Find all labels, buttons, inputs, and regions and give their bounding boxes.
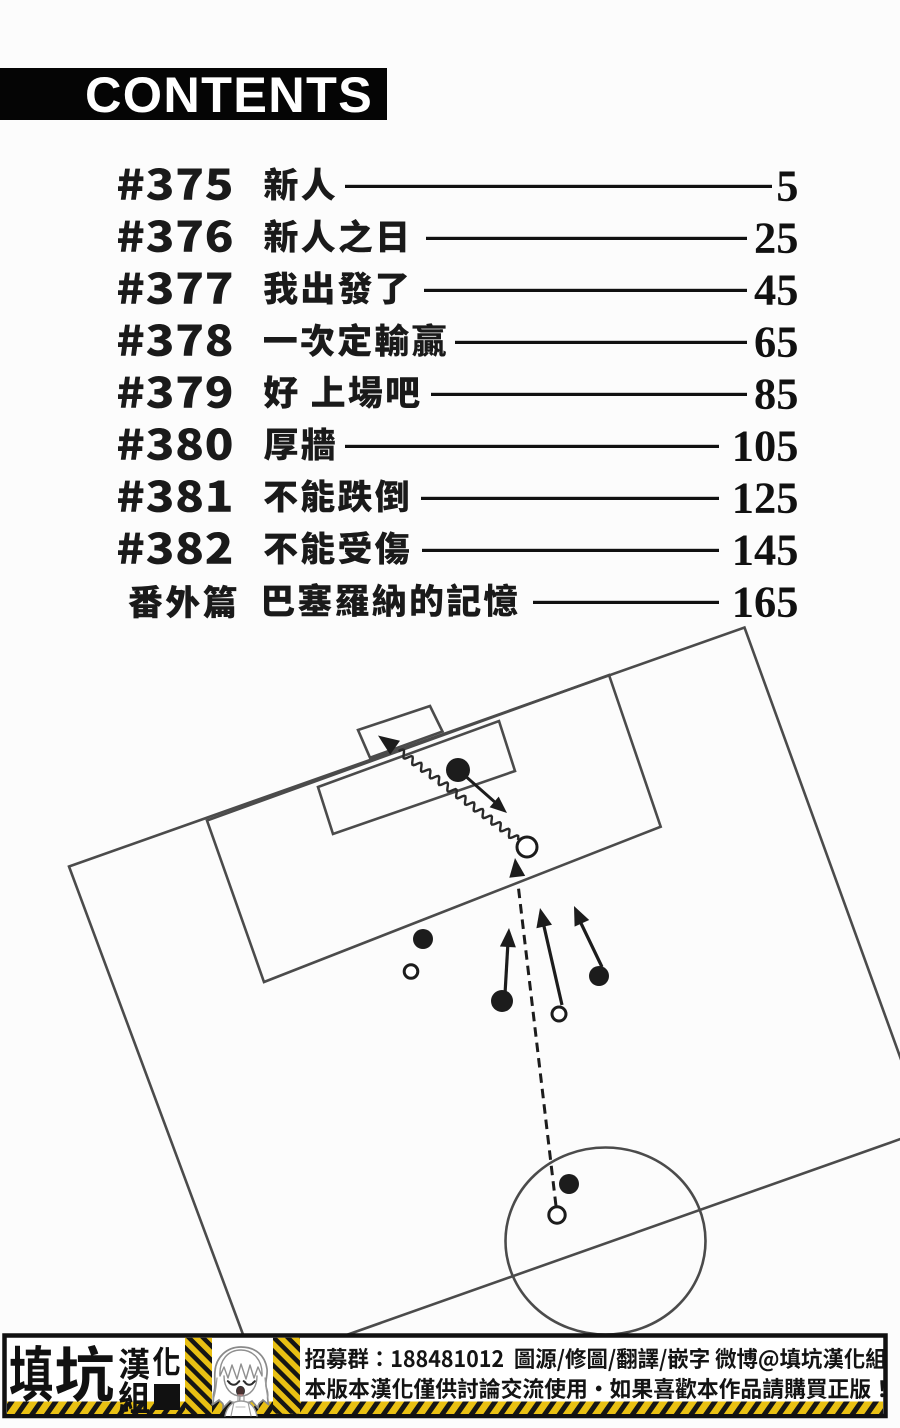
svg-text:85: 85	[754, 369, 799, 419]
svg-text:45: 45	[754, 265, 799, 315]
svg-text:165: 165	[732, 577, 799, 627]
svg-text:125: 125	[732, 473, 799, 523]
svg-text:25: 25	[754, 213, 799, 263]
svg-text:65: 65	[754, 317, 799, 367]
svg-text:145: 145	[732, 525, 799, 575]
svg-text:CONTENTS: CONTENTS	[85, 66, 373, 123]
svg-text:105: 105	[732, 421, 799, 471]
svg-text:5: 5	[776, 161, 798, 211]
